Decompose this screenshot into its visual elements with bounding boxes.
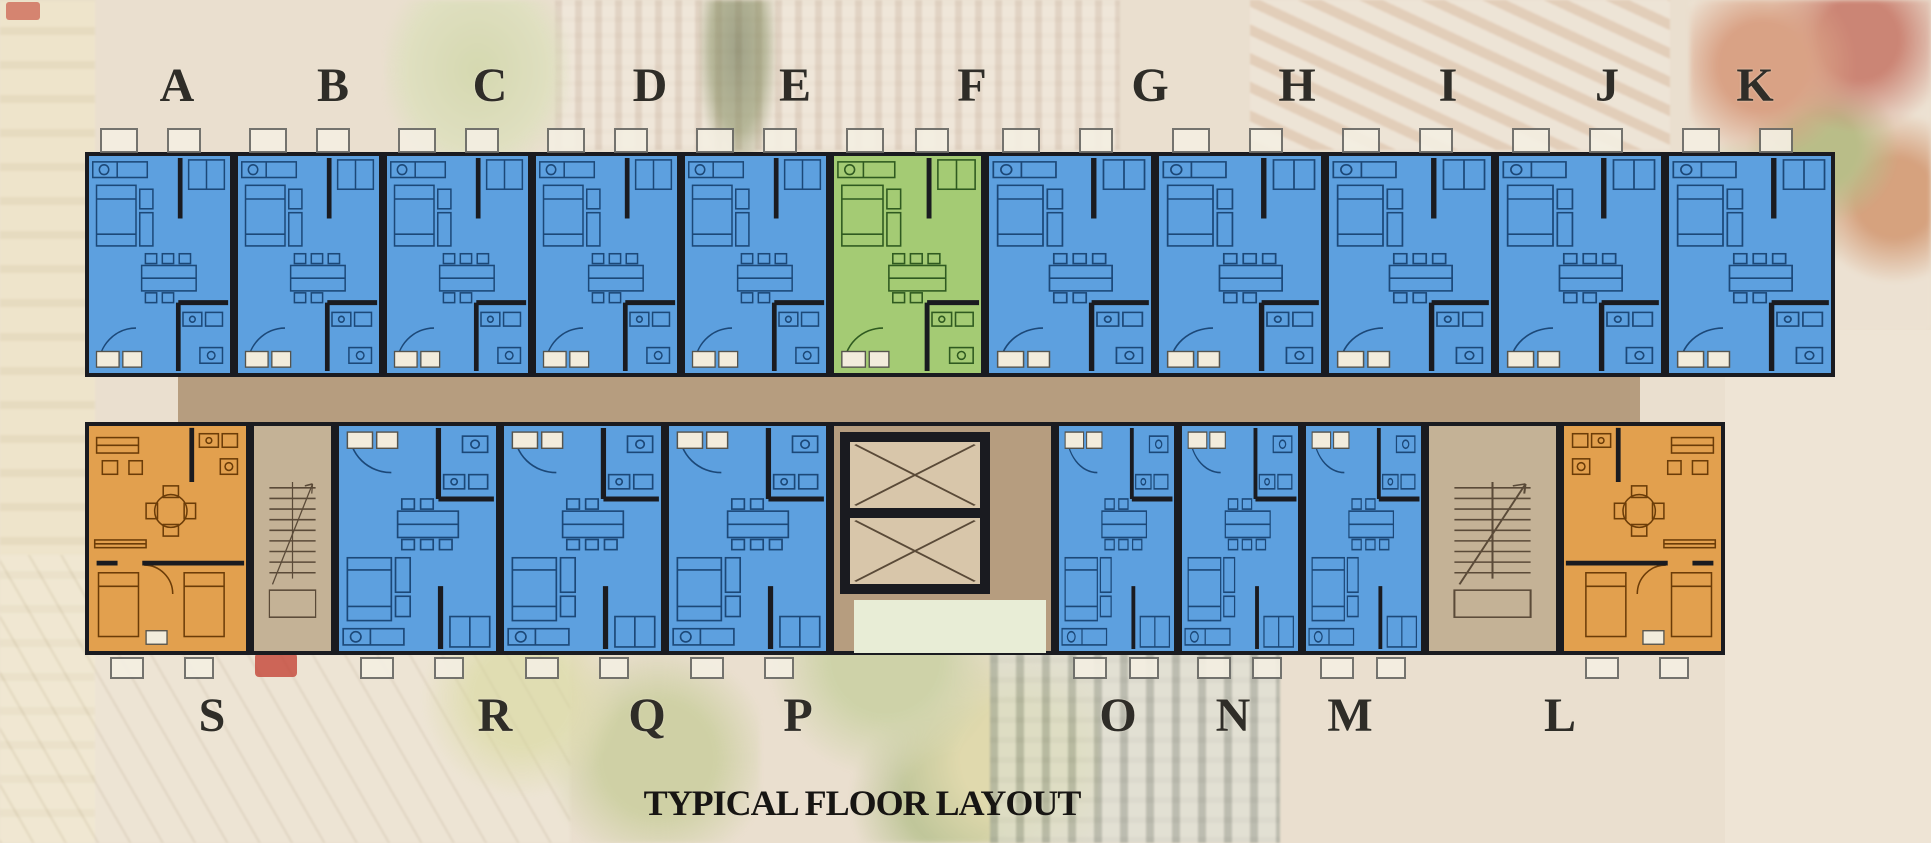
corridor: [178, 377, 1640, 422]
balcony-box-N-0: [1197, 657, 1231, 679]
page-title: TYPICAL FLOOR LAYOUT: [644, 782, 1081, 824]
unit-label-N: N: [1216, 692, 1251, 740]
ac-box-A-0: [100, 128, 138, 153]
unit-label-I: I: [1439, 62, 1458, 110]
balcony-box-M-1: [1376, 657, 1406, 679]
unit-label-P: P: [783, 692, 812, 740]
ac-box-G-1: [1079, 128, 1113, 153]
ac-box-I-0: [1342, 128, 1380, 153]
ac-box-H-1: [1249, 128, 1283, 153]
elevator-shaft-block: [840, 432, 990, 594]
unit-J: [1495, 152, 1665, 377]
ac-box-K-0: [1682, 128, 1720, 153]
ac-box-G-0: [1002, 128, 1040, 153]
unit-label-D: D: [633, 62, 668, 110]
ac-box-E-1: [763, 128, 797, 153]
unit-label-B: B: [317, 62, 349, 110]
ac-box-B-0: [249, 128, 287, 153]
balcony-box-R-0: [360, 657, 394, 679]
balcony-box-L-0: [1585, 657, 1619, 679]
balcony-box-Q-0: [525, 657, 559, 679]
balcony-box-P-0: [690, 657, 724, 679]
unit-label-F: F: [957, 62, 986, 110]
stairwell-stair-left: [250, 422, 335, 655]
balcony-box-S-0: [110, 657, 144, 679]
unit-label-L: L: [1544, 692, 1576, 740]
unit-D: [532, 152, 681, 377]
unit-F: [830, 152, 985, 377]
unit-label-Q: Q: [628, 692, 665, 740]
ac-box-K-1: [1759, 128, 1793, 153]
background-red-car: [255, 653, 297, 677]
unit-label-G: G: [1131, 62, 1168, 110]
unit-A: [85, 152, 234, 377]
background-topleft-roof: [6, 2, 40, 20]
balcony-box-L-1: [1659, 657, 1689, 679]
unit-H: [1155, 152, 1325, 377]
unit-Q: [500, 422, 665, 655]
unit-label-K: K: [1736, 62, 1773, 110]
balcony-box-N-1: [1252, 657, 1282, 679]
ac-box-H-0: [1172, 128, 1210, 153]
unit-label-C: C: [473, 62, 508, 110]
unit-label-E: E: [779, 62, 811, 110]
unit-I: [1325, 152, 1495, 377]
ac-box-F-1: [915, 128, 949, 153]
ac-box-B-1: [316, 128, 350, 153]
balcony-box-O-0: [1073, 657, 1107, 679]
floor-plan-stage: ABCDEFGHIJK SRQPONML TYPICAL FLOOR LAYOU…: [0, 0, 1931, 843]
unit-E: [681, 152, 830, 377]
ac-box-C-1: [465, 128, 499, 153]
unit-label-R: R: [478, 692, 513, 740]
unit-B: [234, 152, 383, 377]
ac-box-F-0: [846, 128, 884, 153]
ac-box-J-1: [1589, 128, 1623, 153]
balcony-box-O-1: [1129, 657, 1159, 679]
background-right-pale: [1725, 330, 1931, 843]
balcony-box-M-0: [1320, 657, 1354, 679]
ac-box-D-1: [614, 128, 648, 153]
ac-box-E-0: [696, 128, 734, 153]
unit-N: [1178, 422, 1302, 655]
ac-box-D-0: [547, 128, 585, 153]
unit-label-O: O: [1099, 692, 1136, 740]
balcony-box-R-1: [434, 657, 464, 679]
unit-R: [335, 422, 500, 655]
unit-O: [1055, 422, 1178, 655]
lobby-opening: [854, 600, 1046, 653]
ac-box-I-1: [1419, 128, 1453, 153]
balcony-box-P-1: [764, 657, 794, 679]
balcony-box-S-1: [184, 657, 214, 679]
elevator-shaft-1: [850, 442, 980, 508]
unit-P: [665, 422, 830, 655]
elevator-core: [830, 422, 1055, 655]
background-left-buildings: [0, 0, 95, 843]
unit-G: [985, 152, 1155, 377]
ac-box-J-0: [1512, 128, 1550, 153]
unit-L: [1560, 422, 1725, 655]
unit-label-M: M: [1327, 692, 1372, 740]
unit-label-S: S: [199, 692, 226, 740]
unit-K: [1665, 152, 1835, 377]
ac-box-C-0: [398, 128, 436, 153]
unit-M: [1302, 422, 1425, 655]
stairwell-stair-right: [1425, 422, 1560, 655]
unit-label-H: H: [1278, 62, 1315, 110]
ac-box-A-1: [167, 128, 201, 153]
balcony-box-Q-1: [599, 657, 629, 679]
unit-C: [383, 152, 532, 377]
unit-label-J: J: [1595, 62, 1619, 110]
elevator-shaft-2: [850, 518, 980, 584]
unit-label-A: A: [160, 62, 195, 110]
unit-S: [85, 422, 250, 655]
